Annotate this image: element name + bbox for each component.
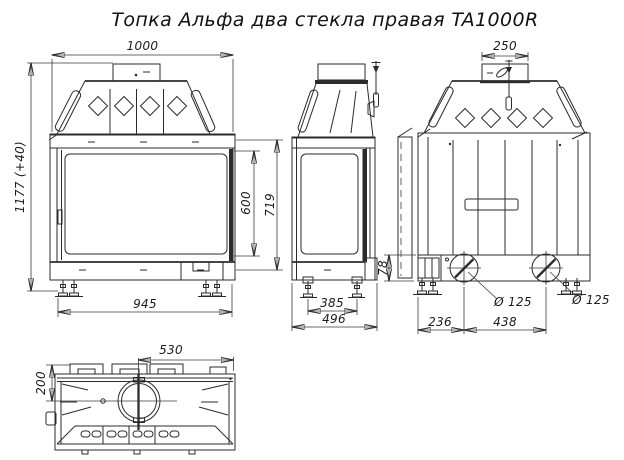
- rear-view-dimensions: [384, 52, 577, 334]
- dim-label-inlet-diameter-left: Ø 125: [487, 295, 539, 309]
- top-view: [46, 364, 235, 454]
- dim-label-edge-to-inlet: 236: [422, 315, 458, 329]
- drawing-sheet: Топка Альфа два стекла правая TA1000R 10…: [0, 0, 624, 460]
- dim-label-panel-height: 719: [263, 188, 277, 222]
- technical-drawing: [0, 0, 624, 460]
- drawing-title: Топка Альфа два стекла правая TA1000R: [25, 9, 624, 31]
- rear-view: [398, 60, 590, 295]
- side-view: [292, 61, 381, 298]
- dim-label-front-feet-span: 945: [125, 297, 165, 311]
- dim-label-inlet-diameter-right: Ø 125: [565, 293, 617, 307]
- dim-label-front-to-flue: 200: [34, 365, 48, 401]
- dim-label-plenum-height: 78: [376, 255, 390, 281]
- dim-label-side-feet-span: 385: [312, 296, 352, 310]
- dim-label-glass-height: 600: [239, 186, 253, 220]
- dim-label-side-depth: 496: [314, 312, 354, 326]
- dim-label-flue-to-edge: 530: [151, 343, 191, 357]
- front-view: [49, 64, 235, 297]
- dim-label-inlet-spacing: 438: [487, 315, 523, 329]
- dim-label-front-height: 1177 (+40): [13, 141, 27, 213]
- dim-label-front-width: 1000: [122, 39, 163, 53]
- dim-label-collar-width: 250: [485, 39, 525, 53]
